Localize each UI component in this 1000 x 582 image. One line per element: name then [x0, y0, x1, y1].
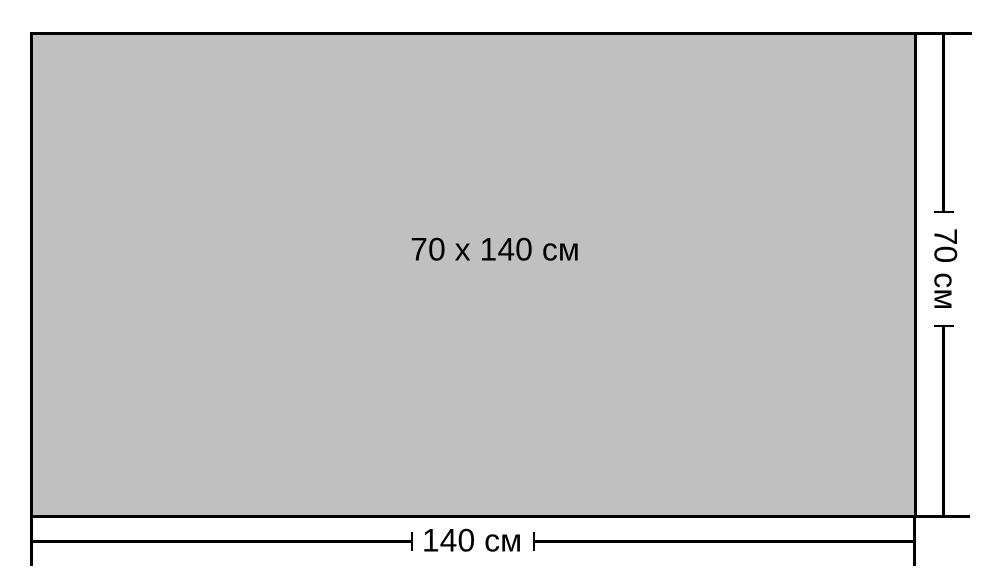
- height-dimension-line-top-segment: [942, 33, 945, 212]
- height-dimension-label: 70 см: [927, 228, 964, 310]
- product-rectangle: [30, 32, 917, 518]
- size-diagram: 70 x 140 см 140 см 70 см: [0, 0, 1000, 582]
- height-dimension-tick-top: [934, 211, 954, 213]
- width-dimension-tick-left: [411, 532, 413, 551]
- width-dimension-label: 140 см: [422, 523, 522, 560]
- width-dimension-line-right-segment: [534, 540, 916, 543]
- height-dimension-tick-bottom: [934, 325, 954, 327]
- height-dimension-line-bottom-segment: [942, 326, 945, 518]
- width-dimension-line-left-segment: [31, 540, 411, 543]
- center-size-label: 70 x 140 см: [410, 232, 580, 269]
- width-dimension-tick-right: [533, 532, 535, 551]
